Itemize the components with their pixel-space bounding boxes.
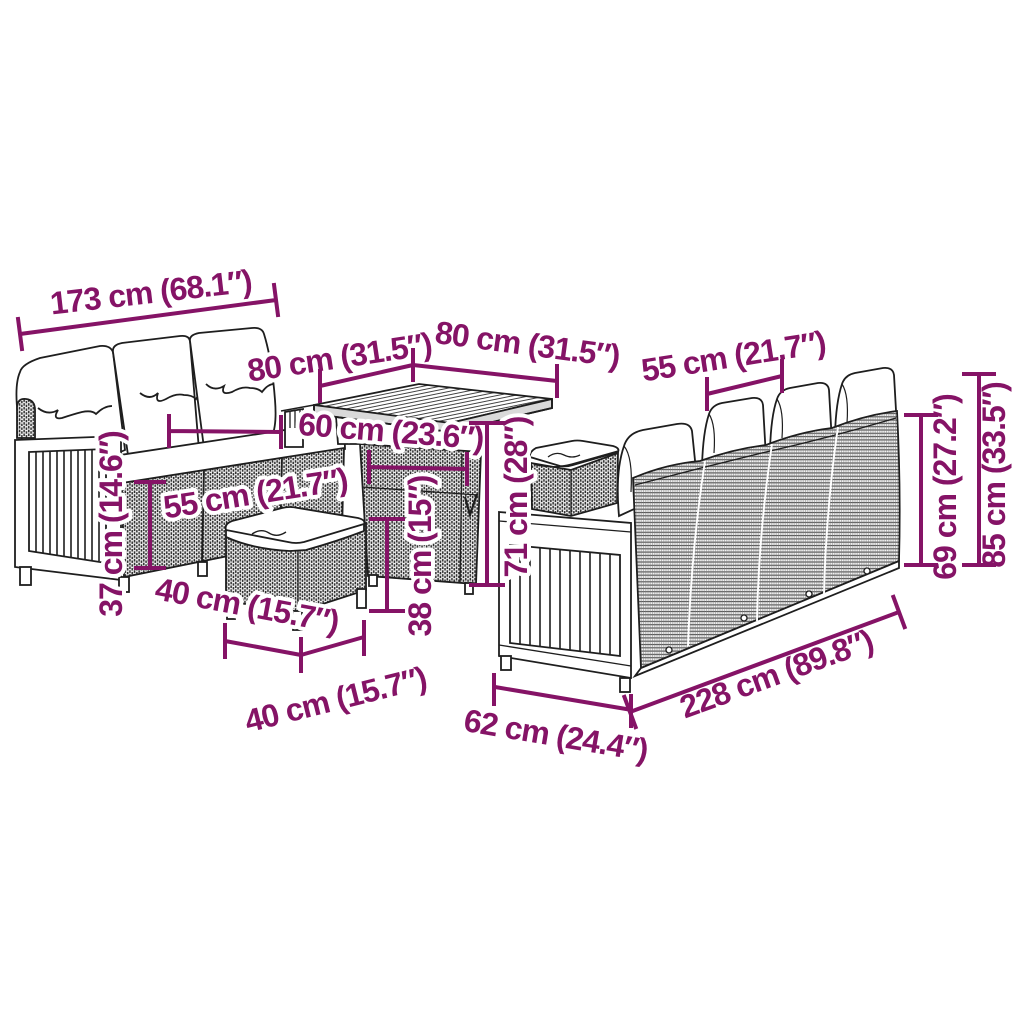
svg-text:69 cm (27.2″): 69 cm (27.2″) [927,394,963,580]
svg-text:37 cm (14.6″): 37 cm (14.6″) [93,431,129,617]
svg-text:71 cm (28″): 71 cm (28″) [498,416,534,577]
svg-text:38 cm (15″): 38 cm (15″) [402,475,438,636]
svg-text:85 cm (33.5″): 85 cm (33.5″) [976,382,1012,568]
